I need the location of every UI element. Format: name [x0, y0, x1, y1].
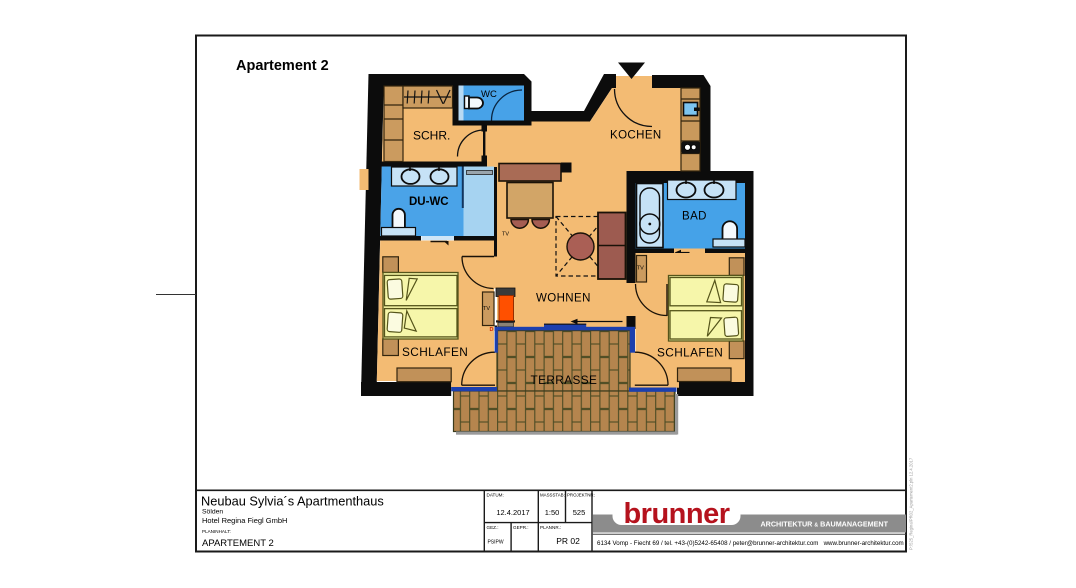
svg-text:Apartement 2: Apartement 2: [236, 58, 329, 74]
svg-text:DU-WC: DU-WC: [409, 196, 449, 208]
svg-text:GEZ.:: GEZ.:: [487, 525, 499, 530]
svg-text:12.4.2017: 12.4.2017: [496, 508, 529, 517]
svg-text:P:\525_Regina\PR02_Apartement2: P:\525_Regina\PR02_Apartement2.pln 12.4.…: [909, 457, 914, 550]
svg-text:ARCHITEKTUR & BAUMANAGEMENT: ARCHITEKTUR & BAUMANAGEMENT: [760, 520, 888, 529]
svg-text:PLANINHALT:: PLANINHALT:: [202, 529, 231, 534]
svg-text:TERRASSE: TERRASSE: [531, 373, 598, 387]
svg-text:brunner: brunner: [623, 498, 729, 530]
svg-text:Neubau Sylvia´s Apartmenthaus: Neubau Sylvia´s Apartmenthaus: [201, 494, 384, 509]
svg-text:SCHR.: SCHR.: [413, 129, 450, 143]
svg-text:GEPR.:: GEPR.:: [513, 525, 529, 530]
svg-text:TV: TV: [637, 266, 644, 272]
svg-text:1:50: 1:50: [545, 508, 560, 517]
svg-text:DATUM:: DATUM:: [487, 493, 504, 498]
svg-text:Hotel Regina Fiegl GmbH: Hotel Regina Fiegl GmbH: [202, 516, 287, 525]
svg-text:6134 Vomp - Fiecht 69 / tel. +: 6134 Vomp - Fiecht 69 / tel. +43-(0)5242…: [597, 540, 904, 547]
svg-text:TV: TV: [483, 306, 490, 312]
svg-text:APARTEMENT 2: APARTEMENT 2: [202, 538, 274, 549]
svg-text:SCHLAFEN: SCHLAFEN: [402, 345, 468, 359]
svg-text:PLANNR.:: PLANNR.:: [540, 525, 561, 530]
svg-text:PR 02: PR 02: [556, 536, 580, 546]
svg-text:525: 525: [573, 508, 586, 517]
svg-text:SCHLAFEN: SCHLAFEN: [657, 346, 723, 360]
svg-text:WOHNEN: WOHNEN: [536, 293, 591, 305]
svg-text:TV: TV: [502, 232, 509, 238]
svg-text:WC: WC: [481, 89, 497, 100]
svg-text:D: D: [490, 327, 494, 333]
svg-text:PSIPW: PSIPW: [487, 540, 503, 546]
svg-text:Sölden: Sölden: [202, 509, 223, 516]
svg-text:MASSSTAB:: MASSSTAB:: [540, 493, 565, 498]
svg-text:PROJEKTNR:: PROJEKTNR:: [567, 493, 595, 498]
svg-text:BAD: BAD: [682, 211, 707, 223]
svg-text:KOCHEN: KOCHEN: [610, 130, 662, 142]
